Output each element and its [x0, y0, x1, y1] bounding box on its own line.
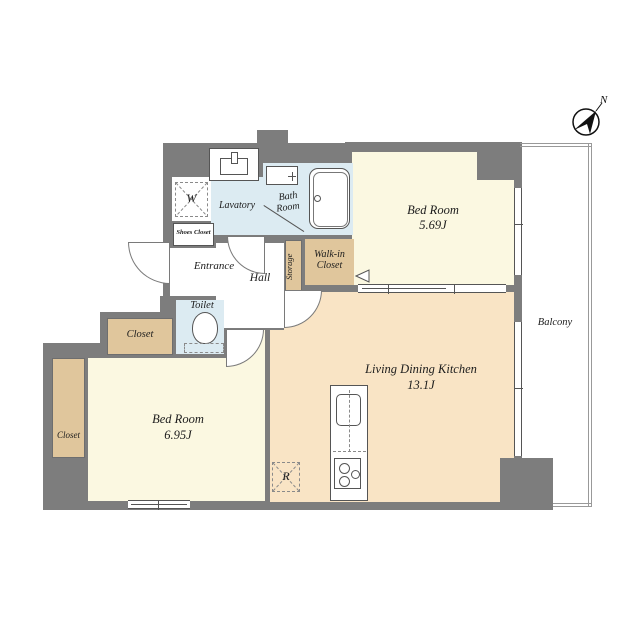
- shower-unit: [266, 166, 298, 185]
- entrance-label: Entrance: [166, 260, 262, 272]
- lavatory-label: Lavatory: [208, 200, 266, 211]
- balcony-edge-right: [588, 143, 592, 507]
- window-ldk-right: [514, 322, 522, 456]
- walk-in-closet-label-line2: Closet: [302, 260, 357, 271]
- toilet-label: Toilet: [178, 300, 226, 312]
- hall-label: Hall: [234, 272, 286, 285]
- burner: [339, 463, 350, 474]
- partition-bedroom-top-ldk: [358, 284, 506, 293]
- room-ldk-main: [270, 330, 514, 502]
- balcony-edge-bottom: [553, 503, 592, 507]
- wall-connector: [160, 296, 176, 318]
- bedroom-bottom-name: Bed Room: [120, 412, 236, 426]
- compass-north-label: N: [599, 94, 608, 106]
- closet-left-label: Closet: [48, 430, 89, 440]
- burner: [339, 476, 350, 487]
- basin-faucet: [231, 152, 238, 164]
- closet-upper-label: Closet: [108, 329, 172, 341]
- compass-icon: N: [566, 92, 612, 140]
- window-bedroom-bottom: [128, 500, 190, 509]
- wall-bedroom-top-notch: [477, 152, 514, 180]
- kitchen-unit: [330, 385, 368, 501]
- walk-in-closet-door-mark: [355, 269, 370, 283]
- washer-space-box: W: [175, 182, 208, 217]
- bedroom-top-size: 5.69J: [380, 218, 486, 232]
- closet-left-box: [52, 358, 85, 458]
- window-bedroom-top-right: [514, 188, 522, 275]
- toilet-door-dashed: [184, 343, 224, 353]
- toilet-bowl: [192, 312, 218, 344]
- kitchen-stove: [334, 458, 361, 489]
- washer-label: W: [176, 192, 207, 205]
- bedroom-top-name: Bed Room: [380, 203, 486, 217]
- balcony-edge-top: [520, 143, 592, 147]
- shoes-closet-label: Shoes Closet: [173, 229, 214, 236]
- ldk-name: Living Dining Kitchen: [336, 362, 506, 376]
- walk-in-closet-label-line1: Walk-in: [302, 249, 357, 260]
- refrigerator-label: R: [273, 470, 299, 483]
- entrance-door-arc: [128, 242, 170, 284]
- bathtub: [309, 168, 350, 229]
- basin-unit: [209, 148, 259, 181]
- wall-pillar-bottom-right: [500, 458, 553, 510]
- bedroom-bottom-size: 6.95J: [120, 428, 236, 442]
- wall-top-bump: [257, 130, 288, 146]
- refrigerator-space-box: R: [272, 462, 300, 492]
- burner: [351, 470, 360, 479]
- storage-label: Storage: [285, 243, 302, 291]
- floor-plan: W R N Bed Room 5.69J Bed Room 6.95J Livi…: [0, 0, 640, 640]
- balcony-label: Balcony: [526, 317, 584, 329]
- ldk-size: 13.1J: [336, 378, 506, 392]
